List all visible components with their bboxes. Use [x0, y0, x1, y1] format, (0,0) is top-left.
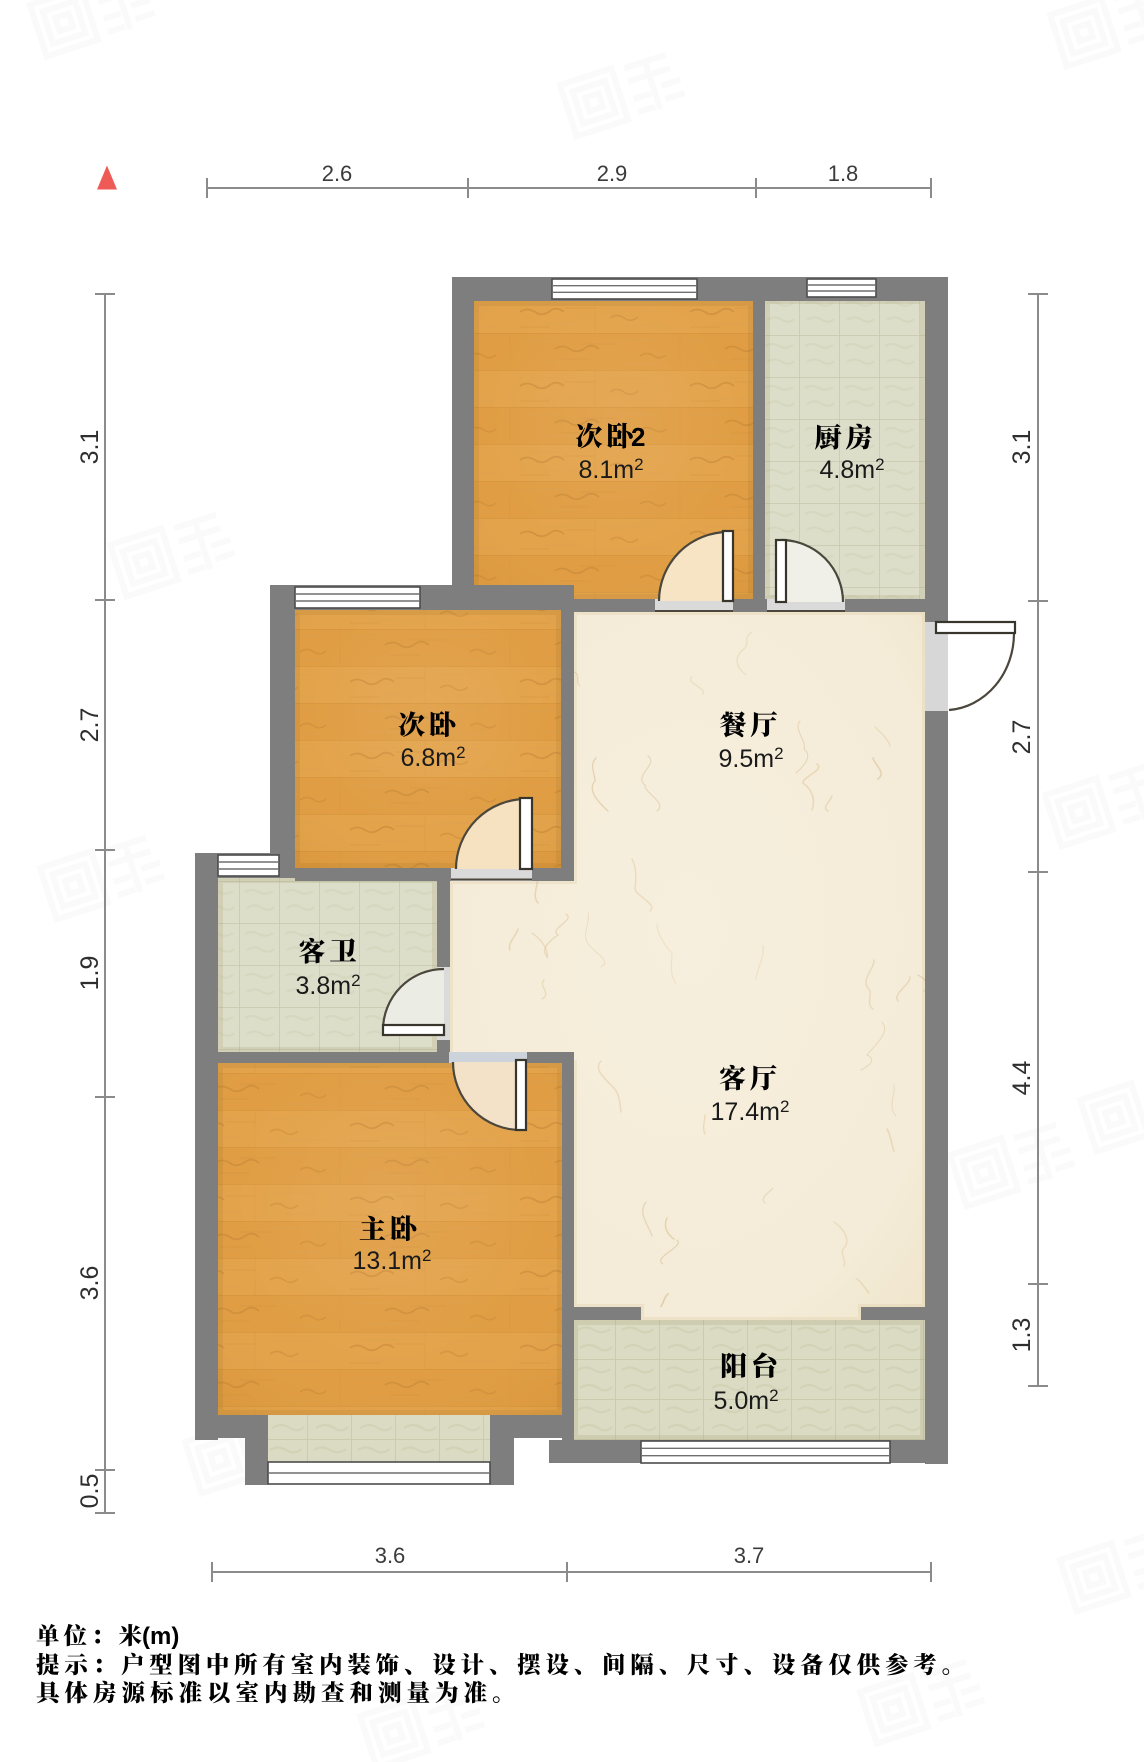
svg-text:2.7: 2.7	[1008, 720, 1036, 755]
svg-text:6.8m2: 6.8m2	[400, 743, 465, 772]
svg-text:9.5m2: 9.5m2	[718, 744, 783, 773]
svg-text:0.5: 0.5	[76, 1474, 104, 1509]
svg-text:3.8m2: 3.8m2	[295, 971, 360, 1000]
svg-text:2.9: 2.9	[597, 161, 628, 186]
svg-text:17.4m2: 17.4m2	[711, 1097, 790, 1126]
svg-text:2: 2	[631, 422, 645, 452]
svg-text:3.1: 3.1	[1008, 430, 1036, 465]
svg-text:2.6: 2.6	[322, 161, 353, 186]
svg-text:3.6: 3.6	[375, 1543, 406, 1568]
svg-text:3.7: 3.7	[734, 1543, 765, 1568]
svg-text:1.9: 1.9	[76, 956, 104, 991]
svg-text:(m): (m)	[142, 1623, 179, 1650]
svg-text:13.1m2: 13.1m2	[353, 1246, 432, 1275]
svg-text:8.1m2: 8.1m2	[578, 455, 643, 484]
svg-text:3.6: 3.6	[76, 1266, 104, 1301]
svg-text:4.4: 4.4	[1008, 1061, 1036, 1096]
svg-text:1.8: 1.8	[828, 161, 859, 186]
svg-text:5.0m2: 5.0m2	[713, 1386, 778, 1415]
svg-text:2.7: 2.7	[76, 708, 104, 743]
svg-text:1.3: 1.3	[1008, 1318, 1036, 1353]
svg-text:4.8m2: 4.8m2	[819, 455, 884, 484]
svg-text:3.1: 3.1	[76, 430, 104, 465]
